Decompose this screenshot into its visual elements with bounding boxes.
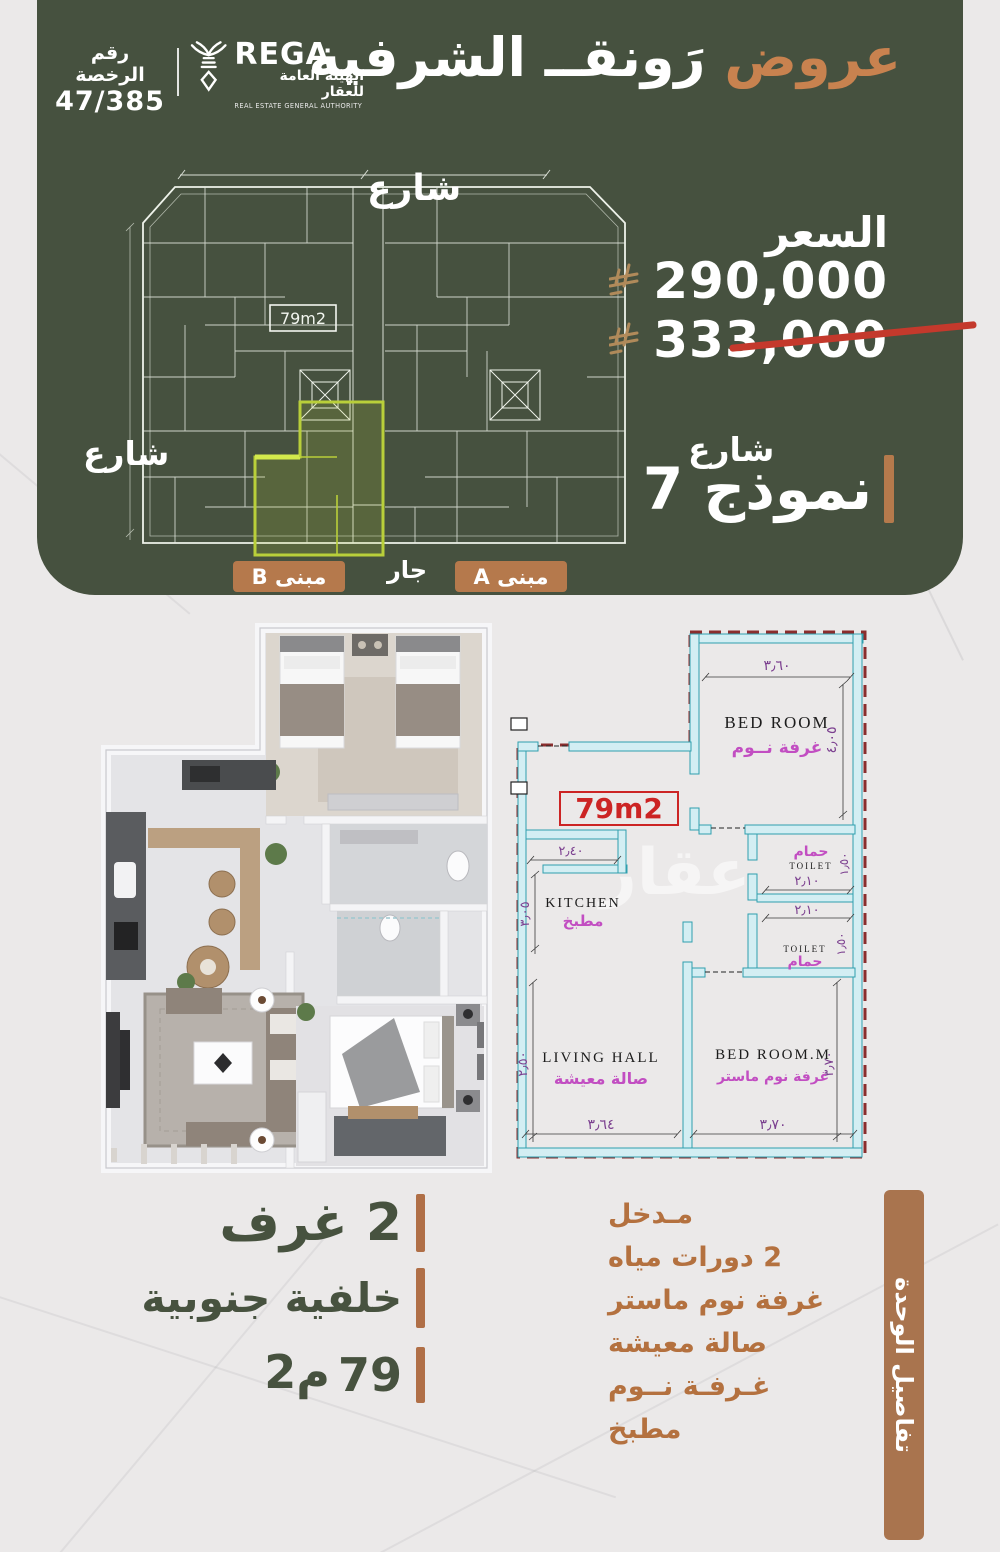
master-label-en: BED ROOM.M bbox=[715, 1047, 831, 1063]
detail-rooms: 2 غرف bbox=[219, 1193, 402, 1253]
model-row: نموذج 7 bbox=[643, 455, 894, 523]
riyal-symbol-icon bbox=[609, 322, 639, 358]
detail-area-unit: م2 bbox=[264, 1345, 330, 1405]
living-label-ar: صالة معيشة bbox=[554, 1069, 648, 1088]
detail-orientation: خلفية جنوبية bbox=[141, 1274, 402, 1322]
title-accent: عروض bbox=[724, 26, 901, 89]
svg-text:٣٫٦٤: ٣٫٦٤ bbox=[587, 1117, 614, 1133]
accent-bar bbox=[416, 1194, 425, 1252]
kitchen-label-en: KITCHEN bbox=[545, 896, 620, 911]
license-label: رقم الرخصة bbox=[55, 42, 165, 86]
list-item: 2 دورات مياه bbox=[608, 1236, 868, 1279]
accent-bar bbox=[416, 1268, 425, 1328]
neighbor-label: جار bbox=[373, 556, 441, 584]
toilet1-label-ar: حمام bbox=[794, 844, 829, 860]
unit-area-badge: 79m2 bbox=[560, 792, 678, 825]
highlighted-unit bbox=[255, 402, 383, 555]
living-label-en: LIVING HALL bbox=[542, 1050, 659, 1066]
flyer-page: رقم الرخصة 47/385 REGA ال bbox=[0, 0, 1000, 1552]
svg-text:٣٫٠٥: ٣٫٠٥ bbox=[518, 901, 533, 926]
building-a-walls bbox=[385, 187, 625, 543]
toilet2-label-ar: حمام bbox=[788, 954, 823, 970]
model-accent-bar bbox=[884, 455, 894, 523]
bedroom-3d bbox=[260, 633, 482, 816]
list-item: مطبخ bbox=[608, 1408, 868, 1451]
site-blueprint: 79m2 bbox=[85, 165, 645, 575]
svg-text:٢٫١٠: ٢٫١٠ bbox=[794, 903, 819, 918]
bathroom-2-3d bbox=[337, 911, 448, 1000]
accent-bar bbox=[416, 1347, 425, 1403]
unit-floorplan-2d: عقار bbox=[505, 622, 885, 1182]
svg-text:٣٫٧٠: ٣٫٧٠ bbox=[759, 1117, 786, 1133]
unit-details-vertical-bar: تفاصيل الوحدة bbox=[884, 1190, 924, 1540]
toilet1-label-en: TOILET bbox=[789, 861, 832, 871]
model-name: نموذج 7 bbox=[643, 455, 872, 523]
page-title: عروض رَونقــ الشرفية bbox=[309, 26, 901, 89]
bedroom-label-ar: غرفة نــوم bbox=[732, 738, 823, 758]
svg-text:٣٫٦٠: ٣٫٦٠ bbox=[763, 658, 790, 674]
price-current-row: 290,000 bbox=[609, 252, 888, 310]
license-block: رقم الرخصة 47/385 bbox=[55, 42, 165, 117]
bathroom-1-3d bbox=[322, 824, 487, 904]
building-a-button[interactable]: مبنى A bbox=[455, 561, 567, 592]
unit-features-list: مـدخل 2 دورات مياه غرفة نوم ماستر صالة م… bbox=[608, 1193, 868, 1451]
svg-text:٢٫٥٠: ٢٫٥٠ bbox=[516, 1051, 531, 1076]
master-bedroom-3d bbox=[296, 1003, 484, 1166]
svg-text:٢٫٤٠: ٢٫٤٠ bbox=[558, 844, 583, 859]
svg-text:١٫٥٠: ١٫٥٠ bbox=[837, 852, 851, 875]
bedroom-label-en: BED ROOM bbox=[724, 713, 829, 732]
toilet2-label-en: TOILET bbox=[783, 944, 826, 954]
license-number: 47/385 bbox=[55, 86, 165, 117]
list-item: صالة معيشة bbox=[608, 1322, 868, 1365]
detail-area-value: 79 bbox=[338, 1348, 402, 1402]
price-current: 290,000 bbox=[653, 252, 888, 310]
detail-area-row: 79 م2 bbox=[264, 1345, 425, 1405]
master-label-ar: غرفة نوم ماستر bbox=[716, 1069, 829, 1085]
stair-core bbox=[490, 370, 540, 420]
site-area-badge: 79m2 bbox=[270, 305, 336, 331]
unit-details-title: تفاصيل الوحدة bbox=[890, 1277, 918, 1453]
title-main: رَونقــ الشرفية bbox=[309, 26, 706, 89]
kitchen-label-ar: مطبخ bbox=[563, 912, 604, 930]
header-divider bbox=[177, 48, 179, 96]
detail-orientation-row: خلفية جنوبية bbox=[141, 1268, 425, 1328]
riyal-symbol-icon bbox=[609, 263, 639, 299]
svg-text:79m2: 79m2 bbox=[575, 792, 663, 825]
street-label-top: شارع bbox=[367, 168, 461, 209]
svg-text:٢٫١٠: ٢٫١٠ bbox=[794, 874, 819, 889]
rega-english-name: REAL ESTATE GENERAL AUTHORITY bbox=[234, 102, 364, 110]
svg-text:١٫٥٠: ١٫٥٠ bbox=[834, 932, 848, 955]
green-panel: رقم الرخصة 47/385 REGA ال bbox=[37, 0, 963, 595]
list-item: غـرفـة نــوم bbox=[608, 1365, 868, 1408]
list-item: مـدخل bbox=[608, 1193, 868, 1236]
detail-rooms-row: 2 غرف bbox=[219, 1193, 425, 1253]
render-3d bbox=[90, 622, 495, 1178]
list-item: غرفة نوم ماستر bbox=[608, 1279, 868, 1322]
palm-tree-icon bbox=[189, 40, 228, 92]
building-b-button[interactable]: مبنى B bbox=[233, 561, 345, 592]
price-label: السعر bbox=[765, 208, 888, 257]
street-label-left: شارع bbox=[83, 434, 169, 473]
svg-text:79m2: 79m2 bbox=[280, 309, 326, 328]
